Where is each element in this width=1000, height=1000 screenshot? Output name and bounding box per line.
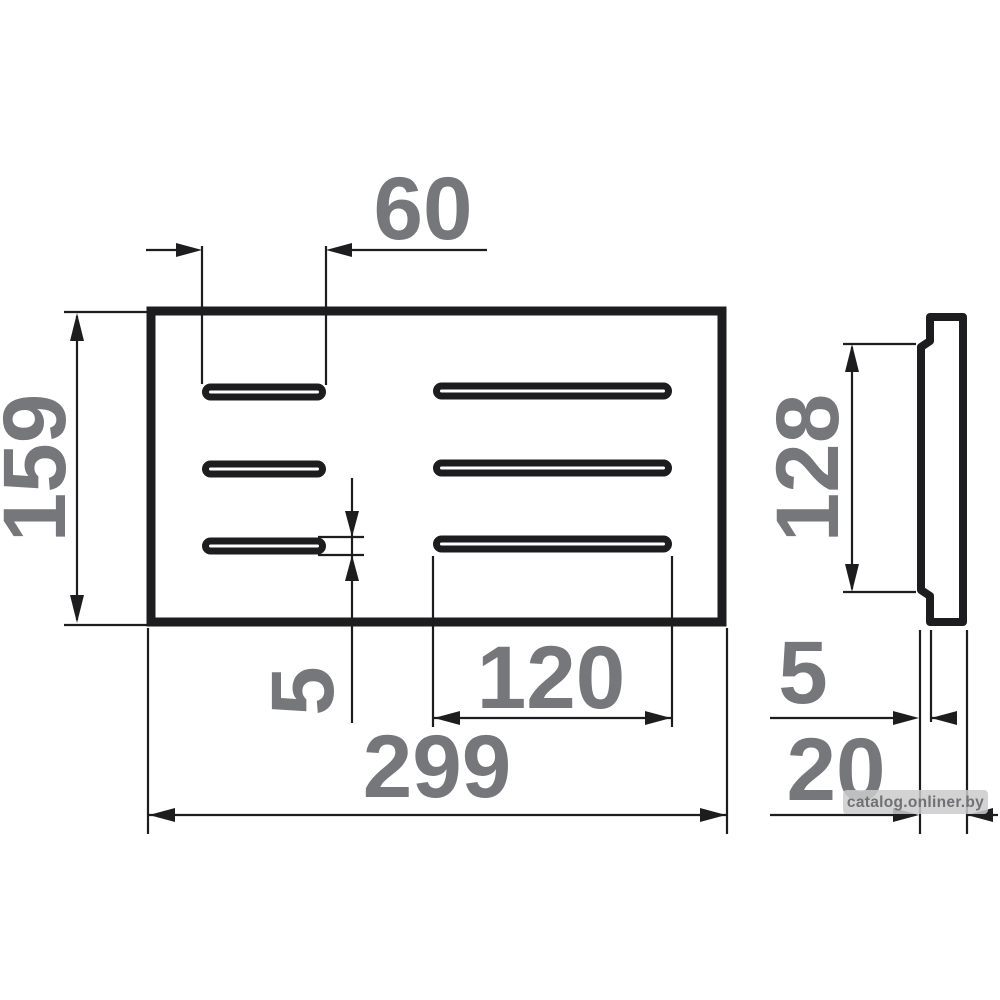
arrowhead-right-icon bbox=[700, 808, 726, 822]
slot-left-row3 bbox=[206, 541, 323, 551]
arrowhead-down-icon bbox=[70, 595, 84, 623]
side-profile-outline bbox=[921, 317, 963, 622]
front-view bbox=[151, 311, 722, 622]
dimension-159: 159 bbox=[0, 312, 147, 625]
dim-label-128: 128 bbox=[757, 394, 857, 543]
watermark-text: catalog.onliner.by bbox=[847, 794, 984, 811]
watermark: catalog.onliner.by bbox=[843, 790, 988, 814]
arrowhead-left-icon bbox=[149, 808, 175, 822]
arrowhead-left-icon bbox=[931, 711, 957, 725]
arrowhead-left-icon bbox=[326, 243, 352, 257]
technical-drawing-svg: 60 159 5 120 299 bbox=[0, 0, 1000, 1000]
dim-label-side-5: 5 bbox=[778, 622, 828, 722]
dimension-128: 128 bbox=[757, 344, 916, 592]
arrowhead-down-icon bbox=[845, 564, 859, 592]
arrowhead-right-icon bbox=[645, 711, 671, 725]
arrowhead-right-icon bbox=[176, 243, 202, 257]
slot-left-row2 bbox=[206, 464, 323, 474]
arrowhead-up-icon bbox=[845, 344, 859, 372]
slot-right-row2 bbox=[437, 463, 669, 473]
side-view bbox=[921, 317, 963, 622]
drawing-canvas: 60 159 5 120 299 bbox=[0, 0, 1000, 1000]
dim-label-60: 60 bbox=[374, 158, 473, 258]
slot-right-row3 bbox=[437, 539, 669, 549]
dimension-299: 299 bbox=[148, 628, 727, 834]
dim-label-159: 159 bbox=[0, 394, 84, 543]
dim-label-slot-5: 5 bbox=[252, 666, 352, 716]
arrowhead-up-icon bbox=[70, 313, 84, 341]
slot-right-row1 bbox=[437, 386, 669, 396]
arrowhead-right-icon bbox=[893, 711, 919, 725]
dim-label-120: 120 bbox=[477, 627, 626, 727]
slot-left-row1 bbox=[206, 387, 323, 397]
dim-label-299: 299 bbox=[363, 716, 512, 816]
